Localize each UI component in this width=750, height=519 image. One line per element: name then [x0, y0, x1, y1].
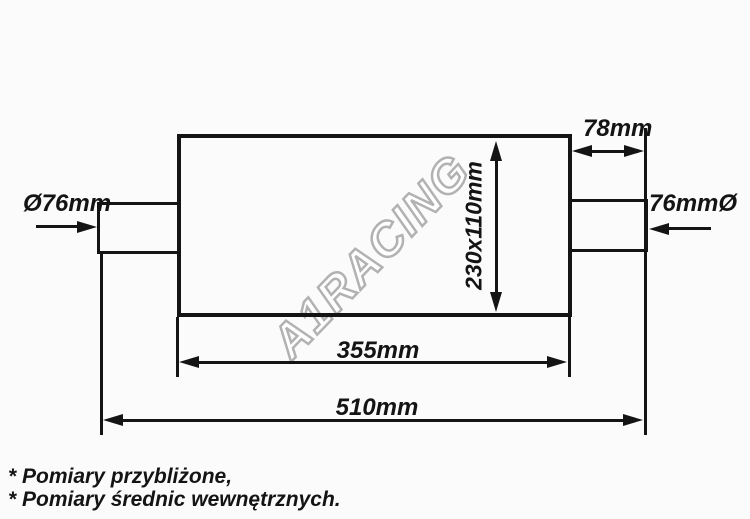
muffler-body-outline — [177, 134, 572, 317]
dim-78mm-arrowhead-left-icon — [572, 145, 592, 157]
outlet-diameter-label: 76mmØ — [649, 192, 737, 216]
extension-line-body-left — [176, 317, 179, 377]
extension-line-left — [100, 252, 103, 435]
muffler-dimension-diagram: A1RACING Ø76mm 76mmØ 78mm 230x110mm 355m… — [0, 0, 750, 519]
inlet-pipe-outline — [97, 202, 181, 254]
outlet-pipe-outline — [568, 199, 648, 252]
dim-355mm-line — [190, 361, 556, 364]
inlet-flow-arrowhead-icon — [77, 221, 97, 233]
footnote-approximate: * Pomiary przybliżone, — [8, 466, 232, 487]
footnote-inner-diameters: * Pomiary średnic wewnętrznych. — [8, 489, 341, 510]
dim-78mm-arrowhead-right-icon — [624, 145, 644, 157]
dim-230x110-arrowhead-top-icon — [490, 141, 502, 161]
dim-355mm-arrowhead-right-icon — [547, 356, 567, 368]
outlet-stub-length-label: 78mm — [583, 117, 652, 141]
dim-230x110-arrowhead-bottom-icon — [490, 292, 502, 312]
outlet-flow-arrowhead-icon — [649, 223, 669, 235]
dim-230x110-line — [495, 153, 498, 301]
extension-line-right — [644, 128, 647, 435]
dim-510mm-arrowhead-right-icon — [623, 414, 643, 426]
extension-line-body-right — [568, 317, 571, 377]
dim-510mm-line — [114, 419, 632, 422]
overall-length-label: 510mm — [329, 396, 425, 420]
body-length-label: 355mm — [330, 339, 426, 363]
dim-355mm-arrowhead-left-icon — [179, 356, 199, 368]
dim-510mm-arrowhead-left-icon — [103, 414, 123, 426]
